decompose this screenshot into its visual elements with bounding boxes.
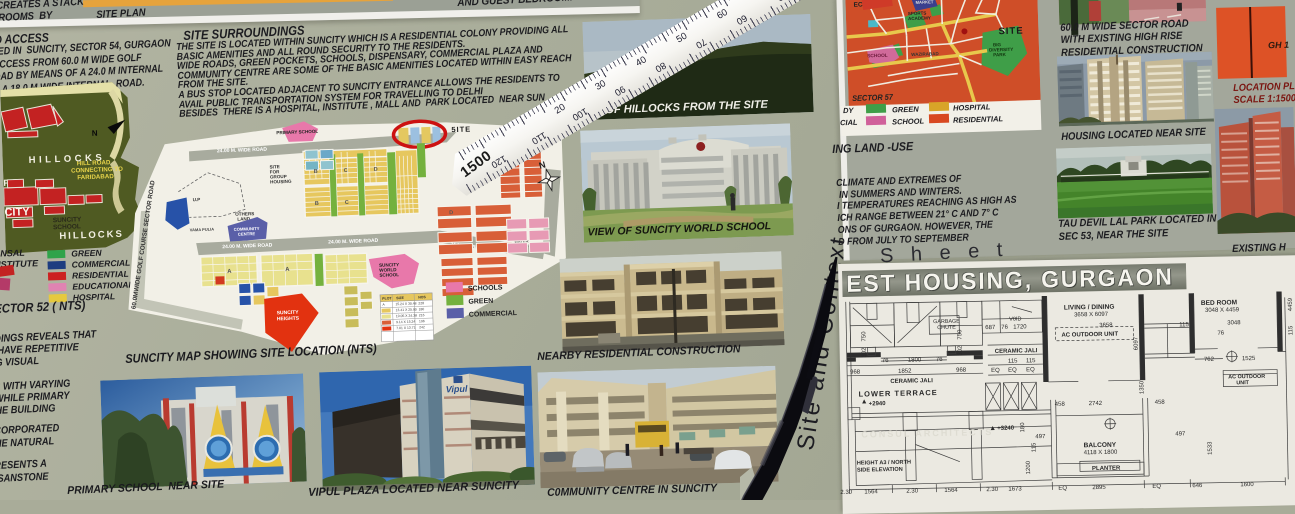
svg-text:7.01 X 13.71: 7.01 X 13.71 xyxy=(396,326,415,331)
svg-text:115: 115 xyxy=(1288,325,1294,335)
svg-text:9.14 X 15.24: 9.14 X 15.24 xyxy=(396,320,415,325)
svg-text:1673: 1673 xyxy=(1008,486,1022,492)
svg-text:1525: 1525 xyxy=(1242,356,1256,362)
svg-text:CENTRE: CENTRE xyxy=(238,231,256,237)
svg-text:115: 115 xyxy=(1026,358,1036,364)
svg-text:C: C xyxy=(345,200,349,206)
svg-text:SIZE: SIZE xyxy=(396,296,405,300)
svg-text:242: 242 xyxy=(419,325,425,329)
svg-text:76: 76 xyxy=(1217,331,1224,337)
svg-text:750: 750 xyxy=(861,331,867,342)
svg-text:N: N xyxy=(92,129,98,138)
svg-text:SIDE ELEVATION: SIDE ELEVATION xyxy=(857,467,903,474)
svg-text:HEIGHT A3 / NORTH: HEIGHT A3 / NORTH xyxy=(857,460,911,467)
svg-text:B: B xyxy=(315,201,319,207)
svg-text:4118 X 1800: 4118 X 1800 xyxy=(1084,450,1118,457)
svg-text:302: 302 xyxy=(862,347,868,358)
svg-text:HOUSING: HOUSING xyxy=(270,179,292,185)
svg-text:+3240: +3240 xyxy=(997,426,1015,432)
svg-text:1600: 1600 xyxy=(1240,482,1254,488)
svg-text:5ITE: 5ITE xyxy=(451,124,471,134)
svg-text:10.05 X 24.38: 10.05 X 24.38 xyxy=(396,314,417,319)
svg-text:HEIGHTS: HEIGHTS xyxy=(277,316,300,323)
svg-text:3048 X 4459: 3048 X 4459 xyxy=(1205,307,1240,314)
svg-text:4459: 4459 xyxy=(1288,297,1294,311)
svg-text:1564: 1564 xyxy=(944,488,958,494)
svg-text:497: 497 xyxy=(1175,431,1186,437)
svg-text:196: 196 xyxy=(419,319,425,323)
svg-text:N: N xyxy=(538,159,547,170)
svg-text:1564: 1564 xyxy=(864,489,878,495)
svg-text:115: 115 xyxy=(1008,359,1018,365)
svg-text:CONSUL ARCHITECTS: CONSUL ARCHITECTS xyxy=(861,427,993,440)
svg-text:76: 76 xyxy=(1001,325,1008,331)
svg-text:1800: 1800 xyxy=(908,357,922,363)
svg-text:NOS: NOS xyxy=(418,295,426,299)
svg-text:EQ: EQ xyxy=(1026,367,1035,373)
svg-text:76: 76 xyxy=(936,357,943,363)
svg-text:180: 180 xyxy=(1020,422,1026,433)
svg-text:1533: 1533 xyxy=(1207,441,1213,455)
svg-text:CERAMIC JALI: CERAMIC JALI xyxy=(995,348,1038,355)
svg-text:COMMERCIAL: COMMERCIAL xyxy=(469,310,518,319)
svg-text:497: 497 xyxy=(1035,434,1046,440)
svg-text:VAMA PULIA: VAMA PULIA xyxy=(190,227,215,233)
svg-text:HILLOCKS: HILLOCKS xyxy=(59,229,124,242)
svg-text:BALCONY: BALCONY xyxy=(1083,442,1116,450)
svg-text:WAZIRABAD: WAZIRABAD xyxy=(911,51,939,57)
svg-text:EQ: EQ xyxy=(1152,484,1161,490)
svg-text:2895: 2895 xyxy=(1092,485,1106,491)
svg-text:B: B xyxy=(314,169,318,175)
svg-text:PLANTER: PLANTER xyxy=(1092,466,1121,473)
svg-text:PLOT: PLOT xyxy=(382,296,392,300)
svg-text:MARKET: MARKET xyxy=(915,0,934,5)
svg-text:U.P: U.P xyxy=(193,197,201,202)
svg-text:▲: ▲ xyxy=(861,398,868,405)
svg-text:2.30: 2.30 xyxy=(906,488,918,494)
svg-text:1720: 1720 xyxy=(1013,324,1027,330)
svg-text:302: 302 xyxy=(958,345,964,356)
svg-text:▲: ▲ xyxy=(989,425,996,432)
svg-text:2742: 2742 xyxy=(1089,401,1103,407)
svg-text:3658: 3658 xyxy=(1099,323,1113,329)
svg-text:3658 X 6097: 3658 X 6097 xyxy=(1074,312,1109,319)
svg-text:D: D xyxy=(449,210,453,216)
svg-text:LOWER TERRACE: LOWER TERRACE xyxy=(858,388,937,399)
svg-text:750: 750 xyxy=(957,329,963,340)
svg-text:115: 115 xyxy=(1031,442,1037,452)
svg-text:180: 180 xyxy=(419,307,425,311)
svg-text:SCHOOL: SCHOOL xyxy=(379,272,399,278)
svg-text:13.41 X 25.90: 13.41 X 25.90 xyxy=(396,308,417,313)
svg-text:1852: 1852 xyxy=(898,369,912,375)
svg-text:AC OUTDOOR UNIT: AC OUTDOOR UNIT xyxy=(1061,332,1118,339)
svg-text:115: 115 xyxy=(1179,322,1189,328)
svg-text:CHUTE: CHUTE xyxy=(937,325,956,331)
svg-text:646: 646 xyxy=(1192,483,1203,489)
svg-text:968: 968 xyxy=(956,368,967,374)
svg-text:6097: 6097 xyxy=(1133,336,1139,350)
svg-text:+2940: +2940 xyxy=(869,401,887,407)
svg-text:Vipul: Vipul xyxy=(446,384,468,395)
svg-text:SCHOOLS: SCHOOLS xyxy=(468,284,503,292)
svg-text:1200: 1200 xyxy=(1026,460,1032,474)
svg-text:V0ID: V0ID xyxy=(1009,316,1022,322)
svg-text:687: 687 xyxy=(985,325,996,331)
svg-text:ACADEMY: ACADEMY xyxy=(908,15,931,21)
svg-text:CITY: CITY xyxy=(4,206,30,219)
svg-text:EQ: EQ xyxy=(1058,486,1067,492)
svg-text:FARIDABAD: FARIDABAD xyxy=(77,173,114,181)
svg-text:C: C xyxy=(344,168,348,174)
svg-text:EQ: EQ xyxy=(991,368,1000,374)
svg-text:458: 458 xyxy=(1155,400,1166,406)
svg-text:1350: 1350 xyxy=(1139,380,1145,394)
svg-text:SCHOOL: SCHOOL xyxy=(867,53,888,60)
svg-text:SITE: SITE xyxy=(998,25,1023,37)
svg-text:216: 216 xyxy=(419,313,425,317)
svg-text:2.30: 2.30 xyxy=(986,487,998,493)
svg-text:228: 228 xyxy=(418,301,424,305)
svg-text:15.24 X 30.48: 15.24 X 30.48 xyxy=(395,302,416,307)
svg-text:UNIT: UNIT xyxy=(1236,380,1249,386)
svg-text:CERAMIC JALI: CERAMIC JALI xyxy=(890,378,933,385)
svg-text:EQ: EQ xyxy=(1008,368,1017,374)
svg-text:GREEN: GREEN xyxy=(468,298,493,306)
svg-text:76: 76 xyxy=(882,358,889,364)
svg-text:458: 458 xyxy=(1055,402,1066,408)
svg-text:BED ROOM: BED ROOM xyxy=(1201,299,1238,307)
svg-text:D: D xyxy=(374,167,378,173)
svg-text:3048: 3048 xyxy=(1227,320,1241,326)
svg-text:762: 762 xyxy=(1204,357,1215,363)
svg-text:LIVING / DINING: LIVING / DINING xyxy=(1064,304,1115,312)
svg-text:PARK: PARK xyxy=(993,52,1007,57)
